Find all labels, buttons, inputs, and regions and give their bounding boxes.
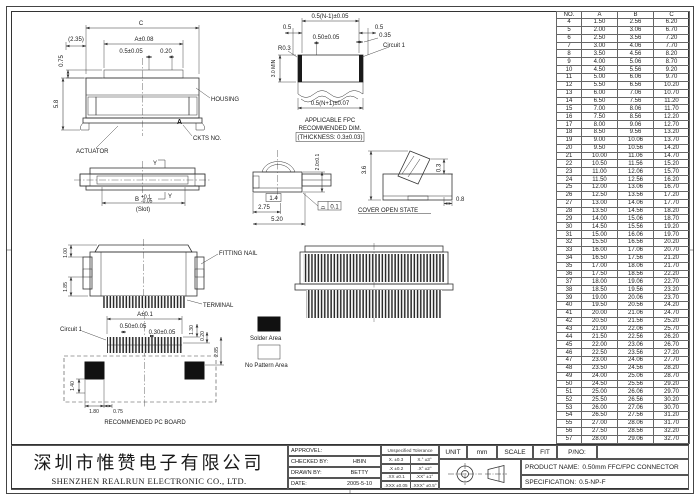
cell-no: 6: [557, 34, 582, 42]
cell-b: 26.06: [618, 388, 654, 396]
cell-b: 7.06: [618, 89, 654, 97]
tolerance-angular: .XX° ±1°: [411, 474, 438, 481]
fpc-caption-2: RECOMMENDED DIM.: [299, 126, 362, 132]
cell-a: 4.50: [582, 66, 618, 74]
cell-a: 21.00: [582, 325, 618, 333]
cell-c: 10.70: [654, 89, 690, 97]
cell-b: 26.56: [618, 396, 654, 404]
product-name-value: 0.50mm FFC/FPC CONNECTOR: [582, 464, 678, 471]
cell-a: 5.00: [582, 74, 618, 82]
no-pattern-swatch: [258, 345, 280, 359]
cell-c: 21.20: [654, 254, 690, 262]
cell-a: 11.50: [582, 176, 618, 184]
cell-no: 5: [557, 26, 582, 34]
cell-c: 28.70: [654, 372, 690, 380]
cell-a: 12.50: [582, 191, 618, 199]
cell-a: 6.50: [582, 97, 618, 105]
cell-a: 20.00: [582, 309, 618, 317]
fpc-dim-pitch: 0.50±0.05: [313, 35, 340, 41]
cell-a: 9.00: [582, 136, 618, 144]
cell-b: 22.06: [618, 325, 654, 333]
cell-a: 11.00: [582, 168, 618, 176]
cell-c: 16.20: [654, 176, 690, 184]
table-row: 52 25.50 26.56 30.20: [557, 396, 690, 404]
dim-a: A±0.08: [135, 37, 155, 43]
cell-a: 10.50: [582, 160, 618, 168]
projection-symbol-cell: [439, 459, 521, 490]
cell-c: 7.70: [654, 42, 690, 50]
cell-b: 23.56: [618, 349, 654, 357]
cell-b: 18.56: [618, 270, 654, 278]
table-row: 21 10.00 11.06 14.70: [557, 152, 690, 160]
dim-58: 5.8: [54, 99, 60, 108]
cell-c: 19.20: [654, 223, 690, 231]
cell-no: 48: [557, 364, 582, 372]
cell-a: 26.00: [582, 404, 618, 412]
table-row: 29 14.00 15.06 18.70: [557, 215, 690, 223]
table-row: 26 12.50 13.56 17.20: [557, 191, 690, 199]
cell-c: 32.20: [654, 427, 690, 435]
signoff-value: [339, 446, 380, 455]
cell-a: 3.00: [582, 42, 618, 50]
pcb-dim-050: 0.50±0.05: [120, 324, 147, 330]
cell-no: 46: [557, 349, 582, 357]
cell-no: 21: [557, 152, 582, 160]
cell-c: 27.70: [654, 356, 690, 364]
cell-c: 15.70: [654, 168, 690, 176]
cell-no: 40: [557, 301, 582, 309]
tolerance-angular: .X° ±2°: [411, 465, 438, 472]
cell-c: 25.20: [654, 317, 690, 325]
cell-a: 25.50: [582, 396, 618, 404]
side-dim-20: 2.0±0.1: [315, 153, 321, 170]
table-row: 13 6.00 7.06 10.70: [557, 89, 690, 97]
slot-dim-b-tol-dn: -0.05: [141, 199, 153, 205]
signoff-row: DATE: 2005-5-10: [288, 478, 381, 490]
cell-b: 25.56: [618, 380, 654, 388]
cell-c: 16.70: [654, 184, 690, 192]
cell-b: 17.56: [618, 254, 654, 262]
cell-a: 24.50: [582, 380, 618, 388]
cell-c: 13.20: [654, 129, 690, 137]
pcb-dim-a: A±0.1: [137, 312, 153, 318]
pcb-dim-130: 1.30: [189, 325, 195, 335]
tolerance-linear: X. ±0.3: [382, 456, 411, 463]
col-b: B: [618, 12, 654, 19]
cell-no: 19: [557, 136, 582, 144]
cell-c: 31.70: [654, 419, 690, 427]
cell-a: 22.00: [582, 341, 618, 349]
tolerance-angular: X.° ±3°: [411, 456, 438, 463]
fpc-caption-3: (THICKNESS: 0.3±0.03): [298, 135, 363, 141]
fpc-dim-top: 0.5(N-1)±0.05: [312, 14, 350, 20]
tolerance-row: .X ±0.2 .X° ±2°: [381, 464, 439, 473]
cell-no: 27: [557, 199, 582, 207]
cell-a: 27.00: [582, 419, 618, 427]
slot-view-drawing: Y Y B +0.1 -0.05 (Slot): [74, 160, 211, 213]
table-row: 37 18.00 19.06 22.70: [557, 278, 690, 286]
cell-no: 23: [557, 168, 582, 176]
cell-c: 22.20: [654, 270, 690, 278]
cell-b: 3.56: [618, 34, 654, 42]
cell-no: 17: [557, 121, 582, 129]
table-row: 49 24.00 25.06 28.70: [557, 372, 690, 380]
cell-b: 8.56: [618, 113, 654, 121]
cell-no: 38: [557, 286, 582, 294]
tolerance-angular: .XXX° ±0.5°: [411, 482, 438, 489]
flatness-symbol-icon: ⌓: [321, 205, 326, 211]
cell-c: 21.70: [654, 262, 690, 270]
cell-b: 8.06: [618, 105, 654, 113]
fpc-dim-bottom: 0.5(N+1)±0.07: [311, 101, 350, 107]
cell-no: 47: [557, 356, 582, 364]
cell-a: 21.50: [582, 333, 618, 341]
signoff-row: CHECKED BY: HBIN: [288, 456, 381, 467]
table-row: 54 26.50 27.56 31.20: [557, 411, 690, 419]
side-dim-275: 2.75: [258, 205, 270, 211]
cell-b: 11.56: [618, 160, 654, 168]
table-row: 40 19.50 20.56 24.20: [557, 301, 690, 309]
table-row: 6 2.50 3.56 7.20: [557, 34, 690, 42]
fitting-nail-label: FITTING NAIL: [219, 251, 258, 257]
cell-b: 23.06: [618, 341, 654, 349]
pcb-dim-030: 0.30±0.05: [149, 330, 176, 336]
signoff-label: APPROVEL:: [289, 446, 339, 455]
cell-a: 4.00: [582, 58, 618, 66]
cell-no: 4: [557, 19, 582, 27]
cell-a: 1.50: [582, 19, 618, 27]
cell-b: 15.56: [618, 223, 654, 231]
fit-dim-185: 1.85: [63, 282, 69, 292]
dimension-table-header: NO. A B C: [557, 12, 690, 19]
side-dim-14: 1.4: [269, 196, 278, 202]
cell-no: 55: [557, 419, 582, 427]
cell-c: 29.20: [654, 380, 690, 388]
specification-label: SPECIFICATION:: [525, 479, 576, 486]
cell-b: 7.56: [618, 97, 654, 105]
cell-no: 50: [557, 380, 582, 388]
company-name-cn: 深圳市惟赞电子有限公司: [34, 449, 265, 475]
table-row: 36 17.50 18.56 22.20: [557, 270, 690, 278]
cell-b: 12.06: [618, 168, 654, 176]
cell-b: 10.06: [618, 136, 654, 144]
dimension-table: NO. A B C 4 1.50 2.56 6.20 5 2.00 3.06: [556, 11, 689, 444]
cell-no: 45: [557, 341, 582, 349]
cell-a: 23.00: [582, 356, 618, 364]
signoff-value: BETTY: [339, 468, 380, 477]
cell-no: 29: [557, 215, 582, 223]
cell-b: 9.06: [618, 121, 654, 129]
side-dim-520: 5.20: [271, 217, 283, 223]
cell-b: 21.56: [618, 317, 654, 325]
dim-235: (2.35): [68, 37, 84, 43]
front-view-drawing: C (2.35) A±0.08 0.5±0.05 0.20 0.75: [54, 21, 239, 155]
signoff-label: CHECKED BY:: [289, 457, 339, 466]
cover-open-view-drawing: 3.6 0.3 0.8 COVER OPEN STATE: [358, 151, 465, 214]
section-view-drawing: [295, 243, 453, 322]
cell-b: 4.56: [618, 50, 654, 58]
signoff-value: 2005-5-10: [339, 479, 380, 489]
cell-b: 13.56: [618, 191, 654, 199]
flatness-value: 0.1: [330, 205, 339, 211]
cell-c: 20.20: [654, 239, 690, 247]
cell-a: 26.50: [582, 411, 618, 419]
table-row: 16 7.50 8.56 12.20: [557, 113, 690, 121]
tolerance-row: .XX ±0.1 .XX° ±1°: [381, 473, 439, 482]
table-row: 28 13.50 14.56 18.20: [557, 207, 690, 215]
cell-c: 9.70: [654, 74, 690, 82]
product-name-label: PRODUCT NAME:: [525, 464, 579, 471]
cell-c: 12.20: [654, 113, 690, 121]
table-row: 43 21.00 22.06 25.70: [557, 325, 690, 333]
cell-b: 14.06: [618, 199, 654, 207]
signoff-value: HBIN: [339, 457, 380, 466]
cell-a: 16.50: [582, 254, 618, 262]
cover-dim-03: 0.3: [437, 163, 443, 172]
cover-open-label: COVER OPEN STATE: [358, 208, 418, 214]
cell-a: 14.00: [582, 215, 618, 223]
fpc-dim-30min: 3.0 MIN: [271, 59, 277, 77]
cell-no: 7: [557, 42, 582, 50]
pcb-dim-140: 1.40: [70, 381, 76, 391]
drawing-sheet: C (2.35) A±0.08 0.5±0.05 0.20 0.75: [0, 0, 700, 500]
cell-no: 14: [557, 97, 582, 105]
cell-a: 19.50: [582, 301, 618, 309]
side-view-drawing: 2.0±0.1 1.4 2.75 5.20 ⌓ 0.1: [253, 150, 341, 226]
cell-b: 28.06: [618, 419, 654, 427]
cell-c: 13.70: [654, 136, 690, 144]
cell-b: 12.56: [618, 176, 654, 184]
cell-no: 56: [557, 427, 582, 435]
cell-b: 3.06: [618, 26, 654, 34]
cell-c: 10.20: [654, 81, 690, 89]
table-row: 35 17.00 18.06 21.70: [557, 262, 690, 270]
cell-c: 18.70: [654, 215, 690, 223]
product-name-row: PRODUCT NAME: 0.50mm FFC/FPC CONNECTOR: [521, 459, 689, 475]
cell-b: 16.56: [618, 239, 654, 247]
cell-a: 3.50: [582, 50, 618, 58]
table-row: 19 9.00 10.06 13.70: [557, 136, 690, 144]
cell-a: 18.00: [582, 278, 618, 286]
cell-no: 15: [557, 105, 582, 113]
cell-no: 25: [557, 184, 582, 192]
specification-row: SPECIFICATION: 0.5-NP-F: [521, 475, 689, 490]
cell-c: 7.20: [654, 34, 690, 42]
table-row: 47 23.00 24.06 27.70: [557, 356, 690, 364]
tolerance-linear: .XX ±0.1: [382, 474, 411, 481]
cell-b: 11.06: [618, 152, 654, 160]
cell-a: 6.00: [582, 89, 618, 97]
cell-a: 17.50: [582, 270, 618, 278]
cell-no: 35: [557, 262, 582, 270]
cell-c: 19.70: [654, 231, 690, 239]
tolerance-row: X. ±0.3 X.° ±3°: [381, 455, 439, 464]
cell-no: 26: [557, 191, 582, 199]
no-pattern-label: No Pattern Area: [245, 363, 288, 369]
cell-a: 13.00: [582, 199, 618, 207]
table-row: 56 27.50 28.56 32.20: [557, 427, 690, 435]
specification-value: 0.5-NP-F: [579, 479, 605, 486]
cell-a: 17.00: [582, 262, 618, 270]
cell-no: 39: [557, 294, 582, 302]
cell-a: 25.00: [582, 388, 618, 396]
unit-label: UNIT: [439, 445, 467, 459]
fpc-dim-r03: R0.3: [278, 46, 291, 52]
pcb-dim-180: 1.80: [89, 409, 99, 415]
dim-020: 0.20: [160, 49, 172, 55]
table-row: 27 13.00 14.06 17.70: [557, 199, 690, 207]
cell-no: 57: [557, 435, 582, 443]
cell-a: 14.50: [582, 223, 618, 231]
dim-c: C: [139, 21, 144, 27]
cell-a: 9.50: [582, 144, 618, 152]
table-row: 39 19.00 20.06 23.70: [557, 294, 690, 302]
cell-no: 22: [557, 160, 582, 168]
cell-no: 42: [557, 317, 582, 325]
pno-value-blank: [597, 445, 689, 459]
cell-a: 18.50: [582, 286, 618, 294]
cell-b: 10.56: [618, 144, 654, 152]
table-row: 8 3.50 4.56 8.20: [557, 50, 690, 58]
cell-a: 15.00: [582, 231, 618, 239]
signoff-row: APPROVEL:: [288, 445, 381, 456]
pno-label: P/NO:: [557, 445, 597, 459]
cell-a: 24.00: [582, 372, 618, 380]
cell-b: 6.56: [618, 81, 654, 89]
table-row: 46 22.50 23.56 27.20: [557, 349, 690, 357]
section-y-top: Y: [153, 161, 157, 167]
table-row: 38 18.50 19.56 23.20: [557, 286, 690, 294]
cell-a: 23.50: [582, 364, 618, 372]
cell-c: 29.70: [654, 388, 690, 396]
cell-c: 27.20: [654, 349, 690, 357]
cover-dim-08: 0.8: [456, 197, 465, 203]
slot-label: (Slot): [136, 207, 150, 213]
cell-c: 24.20: [654, 301, 690, 309]
tolerance-linear: .XXX ±0.05: [382, 482, 411, 489]
dim-pitch: 0.5±0.05: [119, 49, 143, 55]
table-row: 51 25.00 26.06 29.70: [557, 388, 690, 396]
actuator-label: ACTUATOR: [76, 149, 109, 155]
signoff-row: DRAWN BY: BETTY: [288, 467, 381, 478]
slot-dim-b: B: [135, 197, 139, 203]
signoff-label: DATE:: [289, 479, 339, 489]
cell-b: 29.06: [618, 435, 654, 443]
solder-area-label: Solder Area: [250, 336, 282, 342]
cell-c: 31.20: [654, 411, 690, 419]
cell-no: 54: [557, 411, 582, 419]
table-row: 15 7.00 8.06 11.70: [557, 105, 690, 113]
scale-label: SCALE: [497, 445, 533, 459]
table-row: 31 15.00 16.06 19.70: [557, 231, 690, 239]
cell-b: 6.06: [618, 74, 654, 82]
cell-no: 18: [557, 129, 582, 137]
table-row: 7 3.00 4.06 7.70: [557, 42, 690, 50]
cell-c: 17.20: [654, 191, 690, 199]
cell-no: 9: [557, 58, 582, 66]
table-row: 34 16.50 17.56 21.20: [557, 254, 690, 262]
cell-no: 41: [557, 309, 582, 317]
table-row: 33 16.00 17.06 20.70: [557, 246, 690, 254]
fitting-view-drawing: 1.00 1.85 FITTING NAIL TERMINAL: [63, 239, 258, 314]
cover-dim-36: 3.6: [362, 165, 368, 174]
cell-b: 18.06: [618, 262, 654, 270]
table-row: 32 15.50 16.56 20.20: [557, 239, 690, 247]
cell-c: 6.20: [654, 19, 690, 27]
table-row: 17 8.00 9.06 12.70: [557, 121, 690, 129]
cell-c: 8.20: [654, 50, 690, 58]
table-row: 42 20.50 21.56 25.20: [557, 317, 690, 325]
cell-b: 9.56: [618, 129, 654, 137]
cell-a: 19.00: [582, 294, 618, 302]
table-row: 57 28.00 29.06 32.70: [557, 435, 690, 443]
cell-a: 13.50: [582, 207, 618, 215]
cell-no: 30: [557, 223, 582, 231]
fpc-view-drawing: 0.5(N-1)±0.05 0.5 0.5 0.50±0.05 0.35 Cir…: [271, 14, 406, 142]
cell-no: 13: [557, 89, 582, 97]
cell-c: 6.70: [654, 26, 690, 34]
cell-no: 32: [557, 239, 582, 247]
cell-a: 8.00: [582, 121, 618, 129]
cell-c: 23.20: [654, 286, 690, 294]
cell-c: 25.70: [654, 325, 690, 333]
cell-c: 11.20: [654, 97, 690, 105]
cell-no: 11: [557, 74, 582, 82]
ckts-a-mark: A: [177, 119, 182, 126]
cell-a: 12.00: [582, 184, 618, 192]
cell-b: 17.06: [618, 246, 654, 254]
cell-b: 19.06: [618, 278, 654, 286]
cell-no: 36: [557, 270, 582, 278]
pcb-circuit1-label: Circuit 1: [60, 327, 83, 333]
cell-a: 15.50: [582, 239, 618, 247]
cell-b: 24.56: [618, 364, 654, 372]
cell-c: 32.70: [654, 435, 690, 443]
table-row: 22 10.50 11.56 15.20: [557, 160, 690, 168]
cell-a: 8.50: [582, 129, 618, 137]
pcb-dim-075: 0.75: [113, 409, 123, 415]
cell-no: 51: [557, 388, 582, 396]
table-row: 50 24.50 25.56 29.20: [557, 380, 690, 388]
cell-a: 7.00: [582, 105, 618, 113]
cell-no: 34: [557, 254, 582, 262]
signoff-label: DRAWN BY:: [289, 468, 339, 477]
cell-no: 8: [557, 50, 582, 58]
pcb-caption: RECOMMENDED PC BOARD: [104, 420, 186, 426]
cell-no: 10: [557, 66, 582, 74]
cell-no: 49: [557, 372, 582, 380]
cell-c: 28.20: [654, 364, 690, 372]
tolerance-header: Unspecified Tolerance: [381, 445, 439, 455]
cell-b: 27.56: [618, 411, 654, 419]
table-row: 10 4.50 5.56 9.20: [557, 66, 690, 74]
table-row: 9 4.00 5.06 8.70: [557, 58, 690, 66]
table-row: 11 5.00 6.06 9.70: [557, 74, 690, 82]
cell-b: 2.56: [618, 19, 654, 27]
cell-c: 26.70: [654, 341, 690, 349]
table-row: 4 1.50 2.56 6.20: [557, 19, 690, 27]
cell-b: 25.06: [618, 372, 654, 380]
table-row: 44 21.50 22.56 26.20: [557, 333, 690, 341]
third-angle-projection-icon: [440, 460, 520, 489]
pcb-dim-285: 2.85: [214, 347, 220, 357]
table-row: 45 22.00 23.06 26.70: [557, 341, 690, 349]
cell-a: 10.00: [582, 152, 618, 160]
cell-c: 15.20: [654, 160, 690, 168]
table-row: 20 9.50 10.56 14.20: [557, 144, 690, 152]
table-row: 30 14.50 15.56 19.20: [557, 223, 690, 231]
cell-no: 53: [557, 404, 582, 412]
